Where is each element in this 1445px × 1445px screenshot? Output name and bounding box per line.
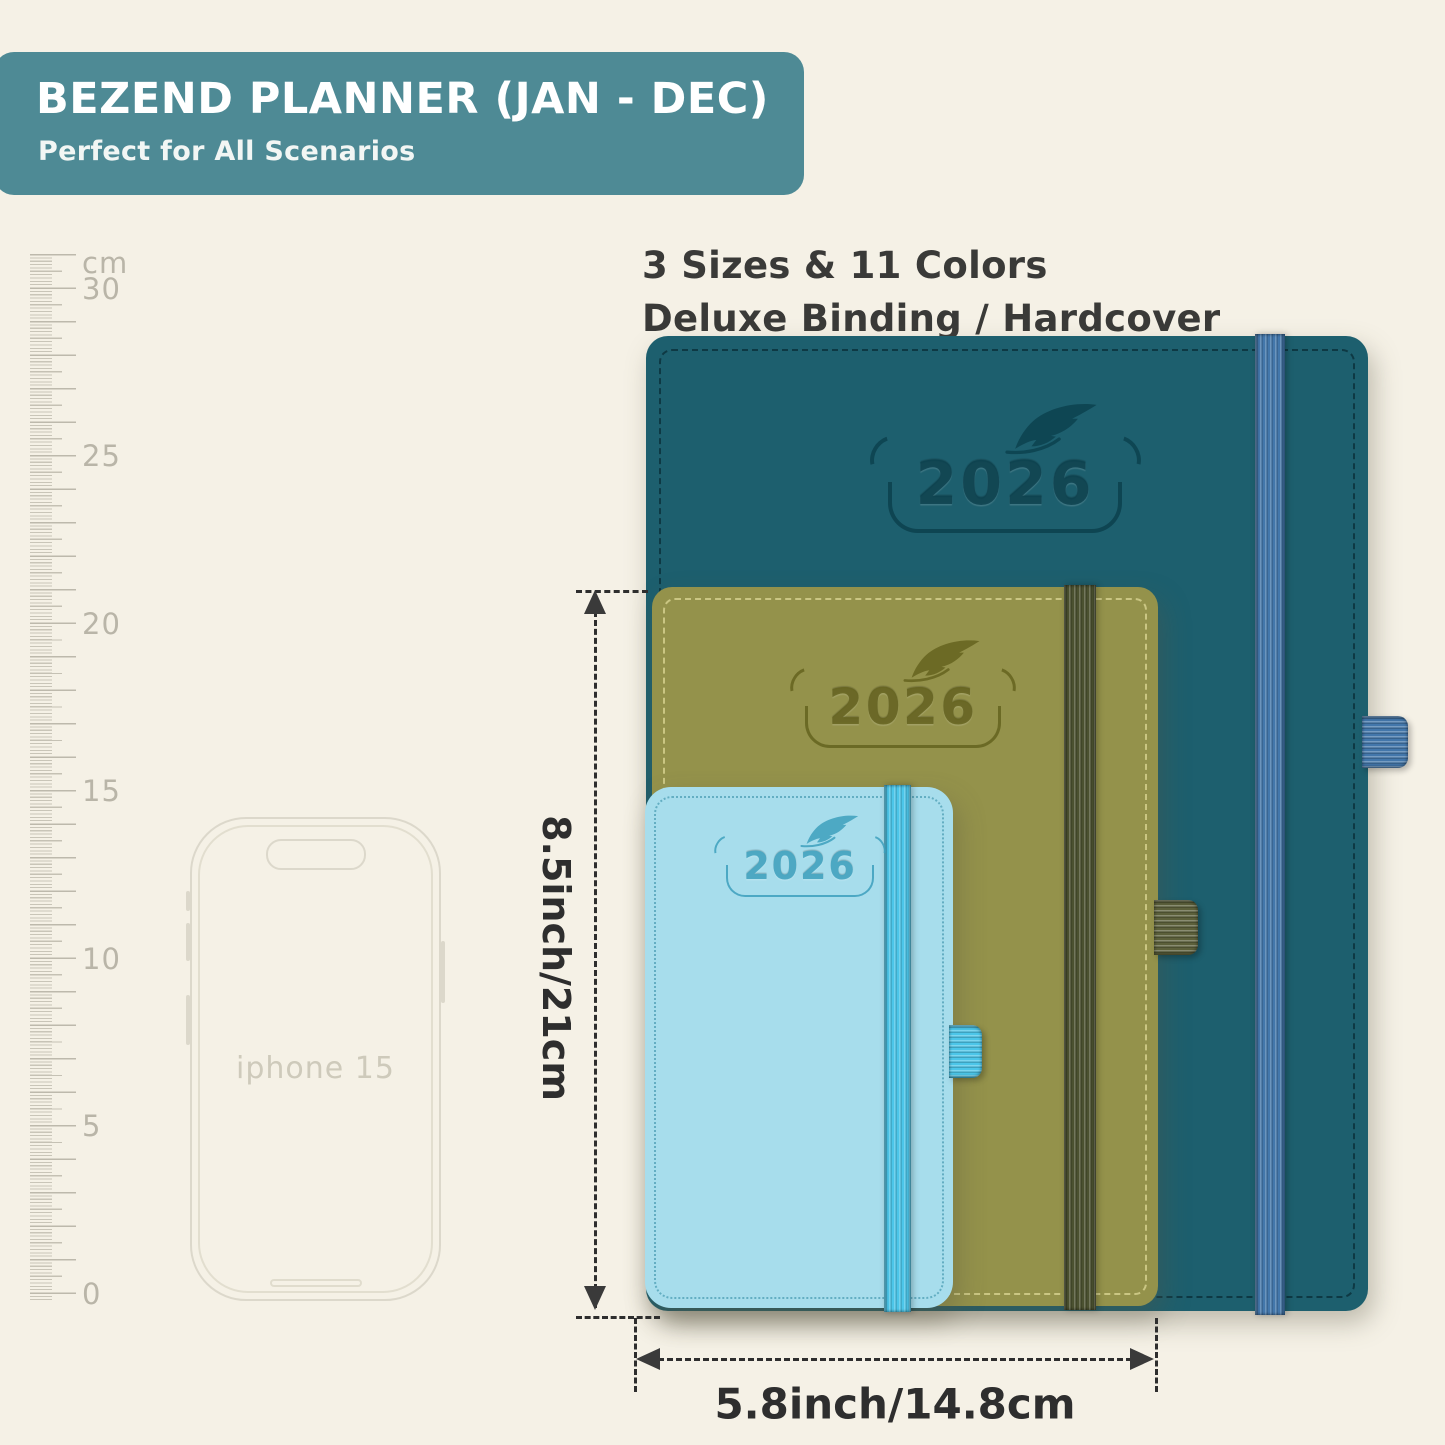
phone-volume-down-button (186, 995, 190, 1045)
bracket-right-icon (1094, 429, 1148, 486)
width-dimension-label: 5.8inch/14.8cm (714, 1380, 1075, 1429)
bracket-left-icon (784, 661, 828, 707)
height-dimension-line (594, 602, 597, 1308)
page-subtitle: Perfect for All Scenarios (38, 136, 416, 167)
header-banner: BEZEND PLANNER (JAN - DEC) Perfect for A… (0, 52, 804, 195)
phone-mute-switch (186, 891, 190, 911)
bracket-underline (888, 482, 1122, 533)
pen-loop-small (949, 1025, 982, 1078)
ruler-label-15: 15 (82, 774, 152, 808)
year-badge: 2026 (898, 449, 1113, 519)
planner-logo-medium: 2026 (798, 637, 1008, 736)
height-dimension-label: 8.5inch/21cm (534, 815, 578, 1101)
year-badge: 2026 (732, 844, 868, 888)
elastic-band-large (1255, 334, 1285, 1315)
planner-logo-large: 2026 (875, 400, 1135, 519)
product-infographic: BEZEND PLANNER (JAN - DEC) Perfect for A… (0, 0, 1445, 1445)
width-dimension-line (658, 1358, 1132, 1361)
arrow-right-icon (1130, 1348, 1154, 1370)
phone-outline: iphone 15 (190, 817, 441, 1301)
planner-logo-small: 2026 (720, 813, 880, 888)
dynamic-island (266, 839, 366, 870)
width-dimension-cap-right (1155, 1318, 1158, 1392)
ruler-label-25: 25 (82, 439, 152, 473)
pen-loop-medium (1154, 900, 1198, 955)
elastic-band-small (884, 785, 911, 1312)
ruler-label-30: 30 (82, 272, 152, 306)
arrow-left-icon (636, 1348, 660, 1370)
phone-power-button (441, 941, 445, 1003)
bracket-left-icon (862, 429, 916, 486)
pen-loop-large (1362, 716, 1408, 768)
phone-speaker (270, 1279, 362, 1287)
bracket-underline (726, 865, 874, 897)
elastic-band-medium (1064, 585, 1096, 1310)
height-dimension-cap-bottom (576, 1316, 660, 1319)
year-badge: 2026 (813, 678, 992, 736)
info-line-sizes: 3 Sizes & 11 Colors (642, 240, 1220, 293)
ruler-label-20: 20 (82, 607, 152, 641)
planner-small-blue: 2026 (645, 787, 953, 1308)
ruler-label-5: 5 (82, 1109, 152, 1143)
arrow-up-icon (584, 590, 606, 614)
bracket-right-icon (978, 661, 1022, 707)
arrow-down-icon (584, 1286, 606, 1310)
page-title: BEZEND PLANNER (JAN - DEC) (36, 74, 769, 124)
bracket-underline (805, 706, 1000, 748)
ruler-label-10: 10 (82, 942, 152, 976)
ruler-label-0: 0 (82, 1277, 152, 1311)
phone-label: iphone 15 (192, 1051, 439, 1086)
product-info: 3 Sizes & 11 Colors Deluxe Binding / Har… (642, 240, 1220, 345)
phone-volume-up-button (186, 923, 190, 961)
bracket-left-icon (710, 832, 743, 866)
